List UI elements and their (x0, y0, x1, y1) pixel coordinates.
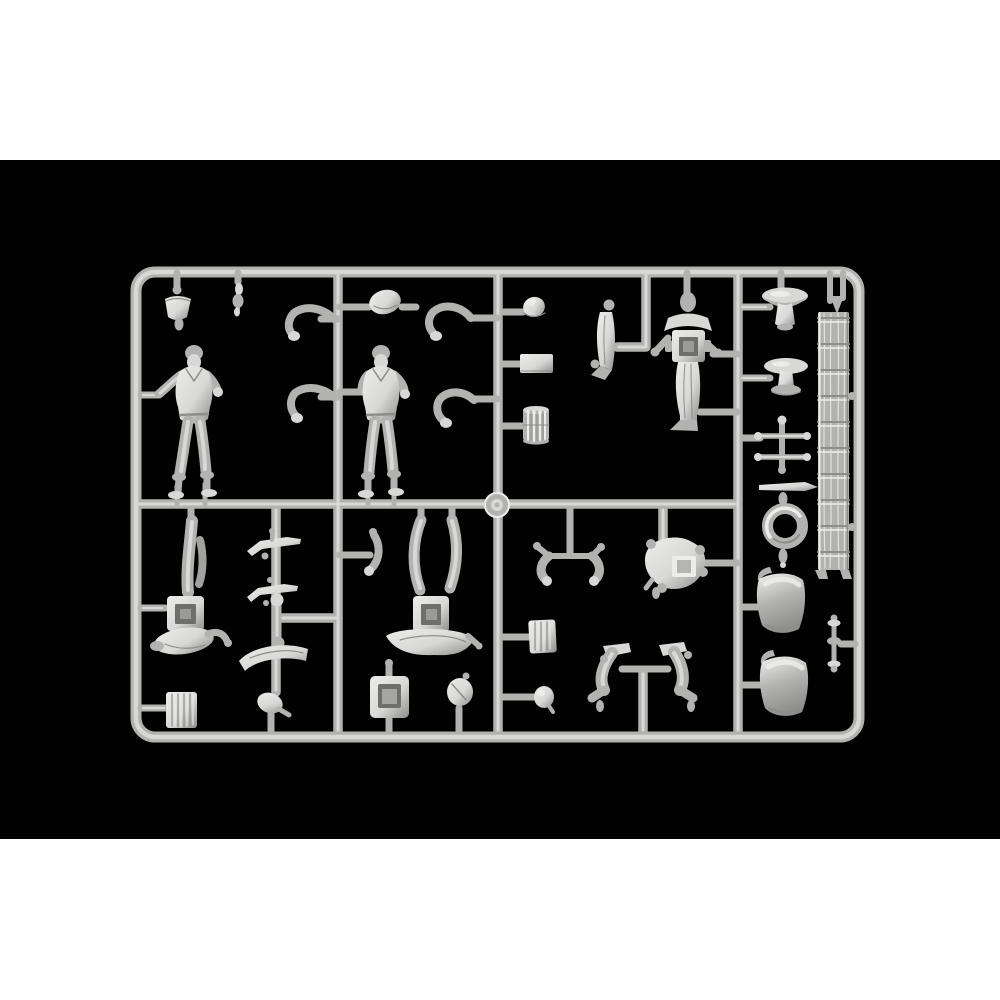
ribbed-crate-1 (166, 692, 197, 728)
ribbed-drum-part (523, 406, 549, 445)
product-photo-stage (0, 0, 1000, 1000)
stanchion-part (827, 615, 841, 673)
sprue-photo (0, 0, 1000, 1000)
screen-box-part (370, 676, 409, 718)
curved-panel-2 (760, 650, 808, 716)
curved-panel-1 (757, 567, 805, 633)
flat-plate-part (520, 354, 553, 373)
sprue-gate-knob (484, 492, 510, 518)
ribbed-crate-2 (528, 619, 557, 653)
